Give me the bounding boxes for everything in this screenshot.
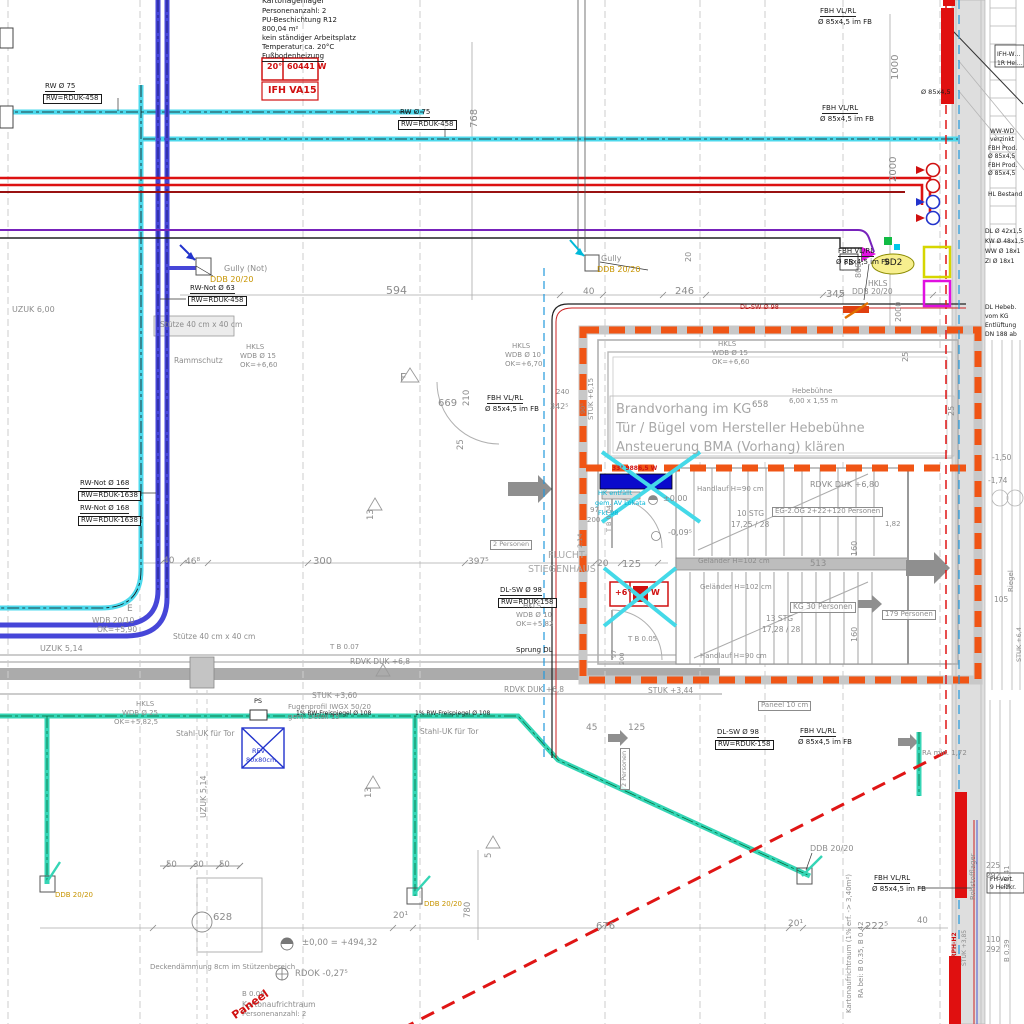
plan-label: 5 (485, 853, 494, 858)
plan-label: Ø 85x4,5 im FB (798, 739, 852, 746)
plan-label: HKLS (512, 343, 530, 350)
plan-label: STUK +3,60 (312, 692, 357, 700)
plan-label: HKLS (136, 701, 154, 708)
plan-label: RA bei: B 0.35, B 0.42 (858, 921, 865, 998)
plan-label: UZUK 5,14 (200, 775, 208, 818)
plan-label: ZI Ø 18x1 (985, 259, 1014, 265)
plan-label: 210 (463, 390, 472, 406)
plan-label: 17,25 / 28 (731, 521, 769, 529)
plan-label: DL Hebeb. (985, 305, 1016, 311)
plan-label: 105 (994, 596, 1008, 604)
plan-label: WDB Ø 25 (122, 710, 158, 717)
plan-label: RW-Not Ø 168 (80, 480, 129, 489)
plan-label: Temperatur ca. 20°C (262, 44, 334, 51)
plan-label: UZUK 6,00 (12, 306, 55, 314)
plan-label: FBH VL/RL (487, 395, 523, 404)
plan-label: F (400, 372, 406, 383)
plan-label: 800,04 m² (262, 26, 298, 33)
plan-label: 768 (470, 109, 480, 128)
plan-label: 2000 (889, 157, 899, 182)
plan-label: 2 Personen (490, 540, 532, 550)
plan-label: 33° 9886,5 W (612, 466, 657, 472)
plan-label: PS (254, 698, 262, 705)
plan-label: HKLS (868, 280, 888, 288)
plan-label: 9 Heizkr. (990, 885, 1016, 891)
plan-label: RW=RDUK-158 (715, 740, 774, 750)
plan-label: FBH VL/RL (874, 875, 910, 884)
plan-label: 397⁵ (468, 558, 489, 567)
plan-label: WDB Ø 15 (240, 353, 276, 360)
plan-label: RW=RDUK-1638 (78, 516, 141, 526)
plan-label: -1,50 (992, 454, 1011, 462)
plan-label: RW=RDUK-458 (43, 94, 102, 104)
plan-label: 300 (313, 557, 332, 567)
plan-label: 676 (596, 922, 615, 932)
plan-label: KW Ø 48x1,5 (985, 239, 1024, 245)
plan-label: DN 188 ab (985, 332, 1017, 338)
plan-label: RDVK DUK +6,80 (810, 481, 879, 489)
plan-label: HKLS (523, 603, 541, 610)
plan-label: DL-SW Ø 98 (500, 587, 542, 596)
plan-label: T B 0.07 (330, 644, 359, 651)
plan-label: FBH VL/RL (838, 248, 874, 257)
plan-label: 628 (213, 913, 232, 923)
plan-label: 20° (267, 63, 282, 71)
plan-label: 40 (163, 557, 174, 566)
plan-label: 1,82 (885, 521, 901, 528)
plan-label: 10 STG (737, 510, 764, 518)
plan-label: 60441 W (287, 63, 326, 71)
plan-label: 40 (583, 288, 594, 297)
plan-label: 13 (367, 509, 376, 520)
plan-label: FLUCHT- (548, 551, 587, 561)
plan-label: STUK +6,15 (588, 378, 595, 420)
plan-label: 292 (986, 946, 1000, 954)
plan-label: HL Bestand (988, 192, 1022, 198)
plan-label: Deckendämmung 8cm im Stützenbereich (150, 964, 295, 971)
plan-label: DL Ø 42x1,5 (985, 229, 1022, 235)
plan-label: OK=+5,82 (516, 621, 553, 628)
plan-label: STIEGENHAUS (528, 565, 596, 575)
plan-label: STUK +3,85 (962, 930, 968, 966)
plan-label: Ø 85x4,5 (921, 89, 951, 96)
plan-label: B 0.39 (1004, 939, 1011, 962)
plan-label: Handlauf H=90 cm (700, 653, 767, 660)
plan-label: Sprung DL (516, 647, 553, 654)
plan-label: DDB 20/20 (424, 901, 462, 908)
plan-label: 594 (386, 285, 407, 296)
plan-label: 20 (597, 560, 608, 569)
plan-label: Ø 85x4,5 im FB (872, 886, 926, 893)
plan-label: 45 (586, 724, 597, 733)
plan-label: DL-SW Ø 98 (740, 304, 779, 311)
plan-label: RDVK DUK +6,8 (504, 686, 564, 694)
plan-label: Ø 85x4,5 im FB (818, 19, 872, 26)
plan-label: 2 Personen (620, 748, 630, 790)
plan-label: FBH VL/RL (822, 105, 858, 114)
plan-label: Geländer H=102 cm (700, 584, 772, 591)
plan-label: WDB Ø 10 (505, 352, 541, 359)
plan-label: 1R Hei… (997, 61, 1023, 67)
plan-label: RW-Not Ø 168 (80, 505, 129, 514)
plan-label: 13 (365, 787, 374, 798)
plan-label: 1% RW-Freispiegel Ø 108 (415, 711, 490, 717)
plan-label: HKLS (246, 344, 264, 351)
plan-label: FBH Prod. (988, 146, 1017, 152)
plan-label: DDB 20/20 (810, 845, 853, 853)
plan-label: E (127, 605, 133, 614)
plan-label: -1,74 (988, 477, 1007, 485)
plan-label: ±0,00 = +494,32 (302, 939, 377, 948)
plan-label: 2,14 (577, 534, 584, 548)
plan-label: WDB Ø 10 (516, 612, 552, 619)
plan-label: Personenanzahl: 2 (262, 8, 326, 15)
plan-label: IFH VA15 (268, 86, 317, 96)
plan-label: FB (844, 259, 853, 267)
plan-label: gem. AV Lokata (595, 500, 646, 507)
plan-label: T B 0.05 (628, 636, 657, 643)
plan-label: 1% RW-Freispiegel Ø 108 (296, 711, 371, 717)
plan-label: Fkt 98 (598, 510, 618, 517)
plan-label: 50 (219, 861, 230, 870)
plan-label: vom KG (985, 314, 1009, 320)
plan-label: Entlüftung (985, 323, 1016, 329)
plan-label: RW=RDUK-458 (188, 296, 247, 306)
plan-label: Stahl-UK für Tor (176, 730, 234, 738)
plan-label: Brandvorhang im KG (616, 403, 751, 416)
plan-label: Stahl-UK für Tor (420, 728, 478, 736)
plan-label: 125 (622, 560, 641, 570)
plan-label: 50 (166, 861, 177, 870)
plan-label: Handlauf H=90 cm (697, 486, 764, 493)
plan-label: HKLS (718, 341, 736, 348)
plan-label: Ø 85x4,5 (988, 171, 1015, 177)
plan-label: Rohstofflager (970, 853, 977, 900)
plan-label: 513 (810, 560, 826, 569)
plan-label: WDB Ø 15 (712, 350, 748, 357)
plan-label: 20¹ (788, 920, 803, 929)
plan-label: 20¹ (393, 912, 408, 921)
plan-label: 1000 (891, 55, 901, 80)
plan-label: OK=+6,70 (505, 361, 542, 368)
plan-label: 6,00 x 1,55 m (789, 398, 838, 405)
plan-label: EG-2.OG 2+22+120 Personen (772, 507, 883, 517)
plan-label: WW-WD (990, 129, 1014, 135)
plan-label: 222⁵ (865, 922, 888, 932)
plan-label: 200 (587, 517, 600, 524)
plan-label: Tür / Bügel vom Hersteller Hebebühne (616, 422, 865, 435)
plan-label: Riegel (1008, 570, 1015, 592)
plan-label: 20 (685, 252, 693, 262)
plan-label: 780 (464, 902, 473, 918)
plan-label: FBH VL/RL (800, 728, 836, 737)
plan-label: 110 (986, 936, 1000, 944)
plan-label: DDB 20/20 (55, 892, 93, 899)
plan-label: 25 (948, 406, 956, 416)
plan-label: RPH-H2 (952, 932, 958, 958)
plan-label: ±0,00 (663, 495, 688, 503)
plan-label: OK=+6,60 (240, 362, 277, 369)
plan-label: 658 (752, 401, 768, 410)
plan-label: KG 30 Personen (790, 602, 856, 613)
plan-label: Ø 85x4,5 im FB (485, 406, 539, 413)
plan-label: RW=RDUK-458 (398, 120, 457, 130)
plan-label: Fußbodenheizung (262, 53, 324, 62)
plan-label: 669 (438, 399, 457, 409)
plan-label: Paneel 10 cm (758, 701, 811, 711)
plan-label: FH-Vert. (990, 877, 1014, 883)
plan-label: 46⁸ (185, 558, 200, 567)
plan-label: WW Ø 18x1 (985, 249, 1020, 255)
plan-label: FBH VL/RL (820, 8, 856, 17)
plan-label: 160 (851, 541, 859, 556)
plan-label: 90⁵ (580, 403, 587, 414)
plan-label: 246 (675, 287, 694, 297)
plan-label: W (651, 589, 660, 597)
plan-label: RW=RDUK-1638 (78, 491, 141, 501)
plan-label: 2000 (895, 302, 903, 322)
plan-label: Stütze 40 cm x 40 cm (173, 633, 255, 641)
plan-label: verzinkt (990, 137, 1014, 143)
plan-label: 40 (917, 917, 928, 926)
plan-label: 800 (855, 263, 863, 278)
plan-label: WDB 20/10 (92, 617, 134, 625)
plan-label: DDB 20/20 (852, 288, 893, 296)
plan-label: DDB 20/20 (210, 276, 253, 284)
plan-label: DL-SW Ø 98 (717, 729, 759, 738)
plan-label: kein ständiger Arbeitsplatz (262, 35, 356, 42)
plan-label: 342⁵ (550, 403, 568, 411)
plan-label: REV (252, 748, 265, 755)
plan-label: UZUK 5,14 (40, 645, 83, 653)
plan-label: OK=+5,90 (97, 626, 137, 634)
plan-label: STUK +6,4 (1016, 627, 1023, 662)
plan-label: 25 (902, 352, 910, 362)
plan-label: Ø 85x4,5 (988, 154, 1015, 160)
plan-label: Ansteuerung BMA (Vorhang) klären (616, 441, 845, 454)
plan-label: FBH Prod. (988, 163, 1017, 169)
plan-label: 80x80cm (246, 757, 276, 764)
floor-plan-canvas: KartonagenlagerPersonenanzahl: 2PU-Besch… (0, 0, 1024, 1024)
plan-label: RDVK DUK +6,8 (350, 658, 410, 666)
plan-label: Rammschutz (174, 357, 223, 365)
plan-label: 160 (851, 627, 859, 642)
plan-label: Stütze 40 cm x 40 cm (160, 321, 242, 329)
plan-label: +6° (615, 589, 631, 597)
plan-label: IFH-W… (997, 52, 1021, 58)
plan-label: Hebebühne (792, 388, 832, 395)
plan-label: 125 (628, 724, 645, 733)
plan-label: RDOK -0,27⁵ (295, 970, 348, 979)
plan-label: OK=+5,82,5 (114, 719, 158, 726)
plan-label: Kartonagenlager (262, 0, 325, 5)
plan-label: 30 (193, 861, 204, 870)
plan-label: 17,28 / 28 (762, 626, 800, 634)
plan-label: 200 (619, 653, 626, 665)
plan-labels-layer: KartonagenlagerPersonenanzahl: 2PU-Besch… (0, 0, 1024, 1024)
plan-label: Kartonaufrichtraum (1% erf. -> 3,40m²) (846, 874, 853, 1013)
plan-label: 97 (611, 650, 618, 658)
plan-label: Geländer H=102 cm (698, 558, 770, 565)
plan-label: 225 (986, 862, 1000, 870)
plan-label: 13 STG (766, 615, 793, 623)
plan-label: -0,09⁵ (668, 529, 692, 537)
plan-label: Personenanzahl: 2 (242, 1011, 306, 1018)
plan-label: SD2 (884, 259, 902, 268)
plan-label: Gully (601, 255, 621, 263)
plan-label: RW Ø 75 (400, 109, 430, 118)
plan-label: PU-Beschichtung R12 (262, 17, 337, 24)
plan-label: RW Ø 75 (45, 83, 75, 92)
plan-label: 240 (556, 389, 569, 396)
plan-label: HK entfällt (598, 490, 632, 497)
plan-label: OK=+6,60 (712, 359, 749, 366)
plan-label: 179 Personen (882, 610, 936, 620)
plan-label: STUK +3,44 (648, 687, 693, 695)
plan-label: RA min. 1,72 (922, 750, 967, 757)
plan-label: 345 (826, 290, 845, 300)
plan-label: RW-Not Ø 63 (190, 285, 235, 294)
plan-label: Ø 85x4,5 im FB (820, 116, 874, 123)
plan-label: DDB 20/20 (597, 266, 640, 274)
plan-label: 25 (457, 439, 466, 450)
plan-label: Gully (Not) (224, 265, 267, 273)
